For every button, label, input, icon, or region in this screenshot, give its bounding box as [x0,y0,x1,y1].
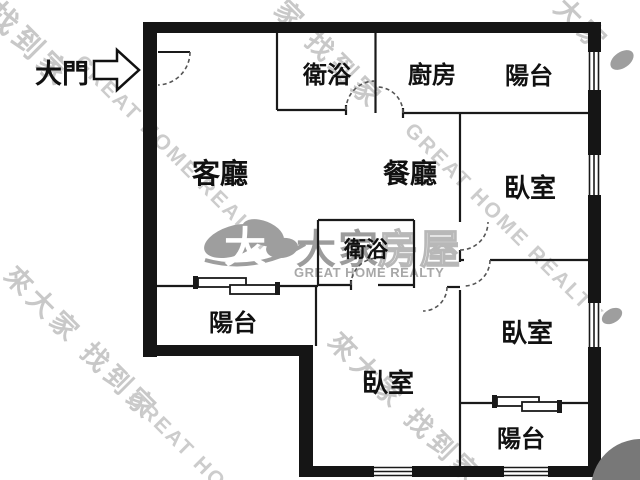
room-label-kitchen: 廚房 [408,61,456,89]
room-label-bedroom-bottom: 臥室 [362,368,414,398]
room-label-bedroom-br: 臥室 [501,318,553,348]
entrance-label: 大門 [35,59,89,89]
slider-cap [557,400,562,413]
window-right-2 [588,155,601,195]
room-label-balcony-top: 陽台 [505,62,553,90]
room-label-bedroom-right: 臥室 [504,173,556,203]
logo-glyph: 大 [224,224,266,271]
slider-cap [275,282,280,295]
window-bottom-1 [374,466,412,477]
window-right-3 [588,303,601,347]
wall-step-vertical [299,345,313,477]
room-label-bath-center: 衛浴 [343,237,389,262]
room-label-bath-top: 衛浴 [302,61,352,89]
room-label-living: 客廳 [192,157,248,189]
slider-panel [522,402,560,411]
wall-step-horizontal [143,345,313,356]
floor-plan: 找到家 GREAT HOME REALTY 來大家 找到家 GREAT HOME… [0,0,640,480]
slider-panel [230,285,276,294]
wall-bottom [299,466,601,477]
wall-left [143,22,157,357]
room-label-balcony-left: 陽台 [209,309,257,337]
logo-brand-en: GREAT HOME REALTY [294,265,444,280]
wall-top [143,22,601,33]
window-bottom-2 [504,466,548,477]
room-label-dining: 餐廳 [383,158,437,189]
room-label-balcony-bottom: 陽台 [497,425,545,453]
wall-right [588,22,601,477]
window-right-1 [588,52,601,90]
